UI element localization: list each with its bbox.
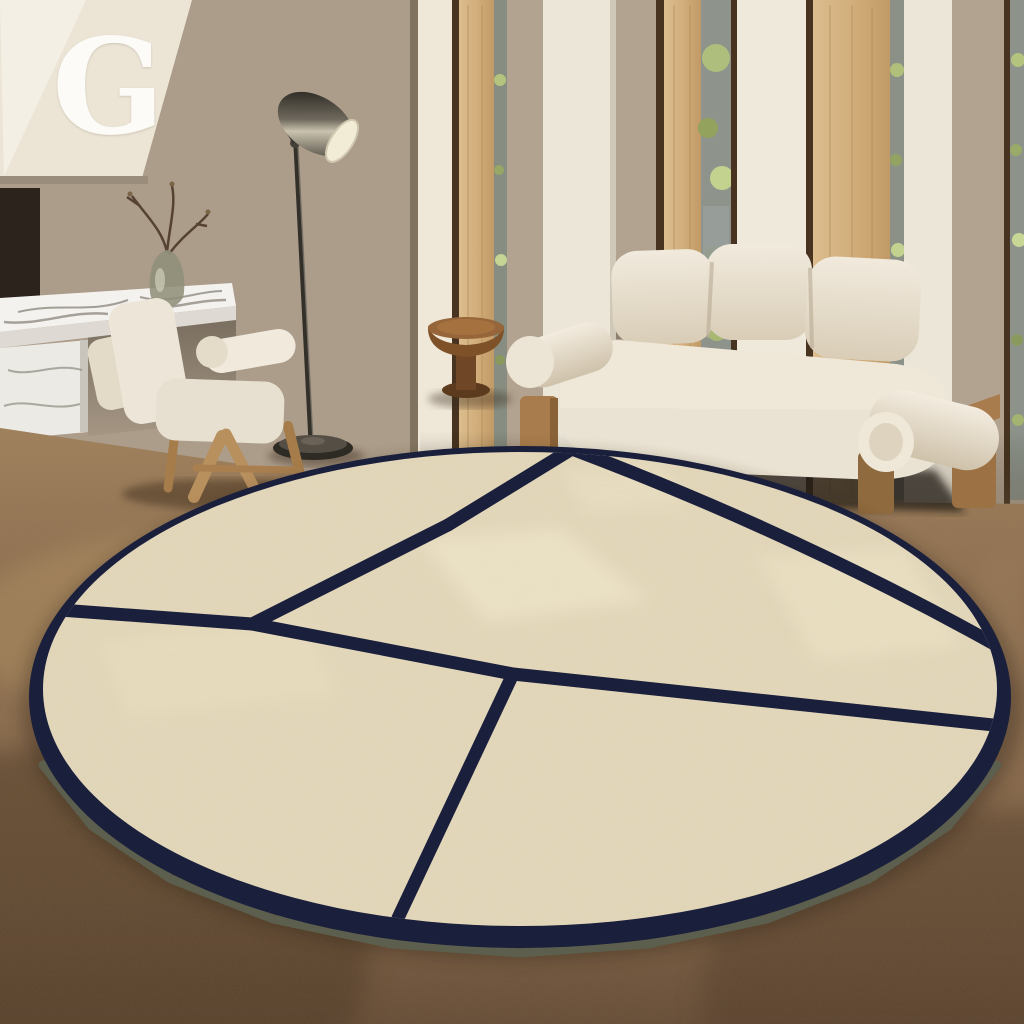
brand-letter-g: G (52, 22, 165, 154)
corner-shadow (410, 0, 418, 505)
marble-base-edge (80, 340, 88, 432)
table-stem (456, 352, 476, 390)
back-cushion-left (610, 248, 715, 346)
back-cushion-middle (706, 244, 812, 340)
chair-brace (196, 468, 300, 470)
table-top-inner (437, 319, 495, 335)
back-cushion-right (803, 255, 922, 363)
bud (206, 210, 211, 215)
round-rug (22, 446, 1022, 961)
living-room-photo: G (0, 0, 1024, 1024)
bud (170, 182, 175, 187)
lamp-base-cap (301, 437, 325, 445)
bolster-left-cap (506, 336, 554, 388)
bolster-right-cap-inner (869, 423, 903, 461)
window-frame (1004, 0, 1010, 505)
vase-highlight (155, 268, 165, 292)
bud (128, 192, 133, 197)
fire-opening (0, 188, 40, 302)
window-frame (452, 0, 459, 505)
hood-underside (0, 176, 148, 184)
oak-post-1 (459, 0, 494, 505)
window-glass-1 (494, 0, 507, 500)
chair-armrest-cap (196, 336, 228, 368)
window-glass-4 (1010, 0, 1024, 500)
marble-base (0, 340, 88, 440)
cream-pilaster (418, 0, 452, 505)
